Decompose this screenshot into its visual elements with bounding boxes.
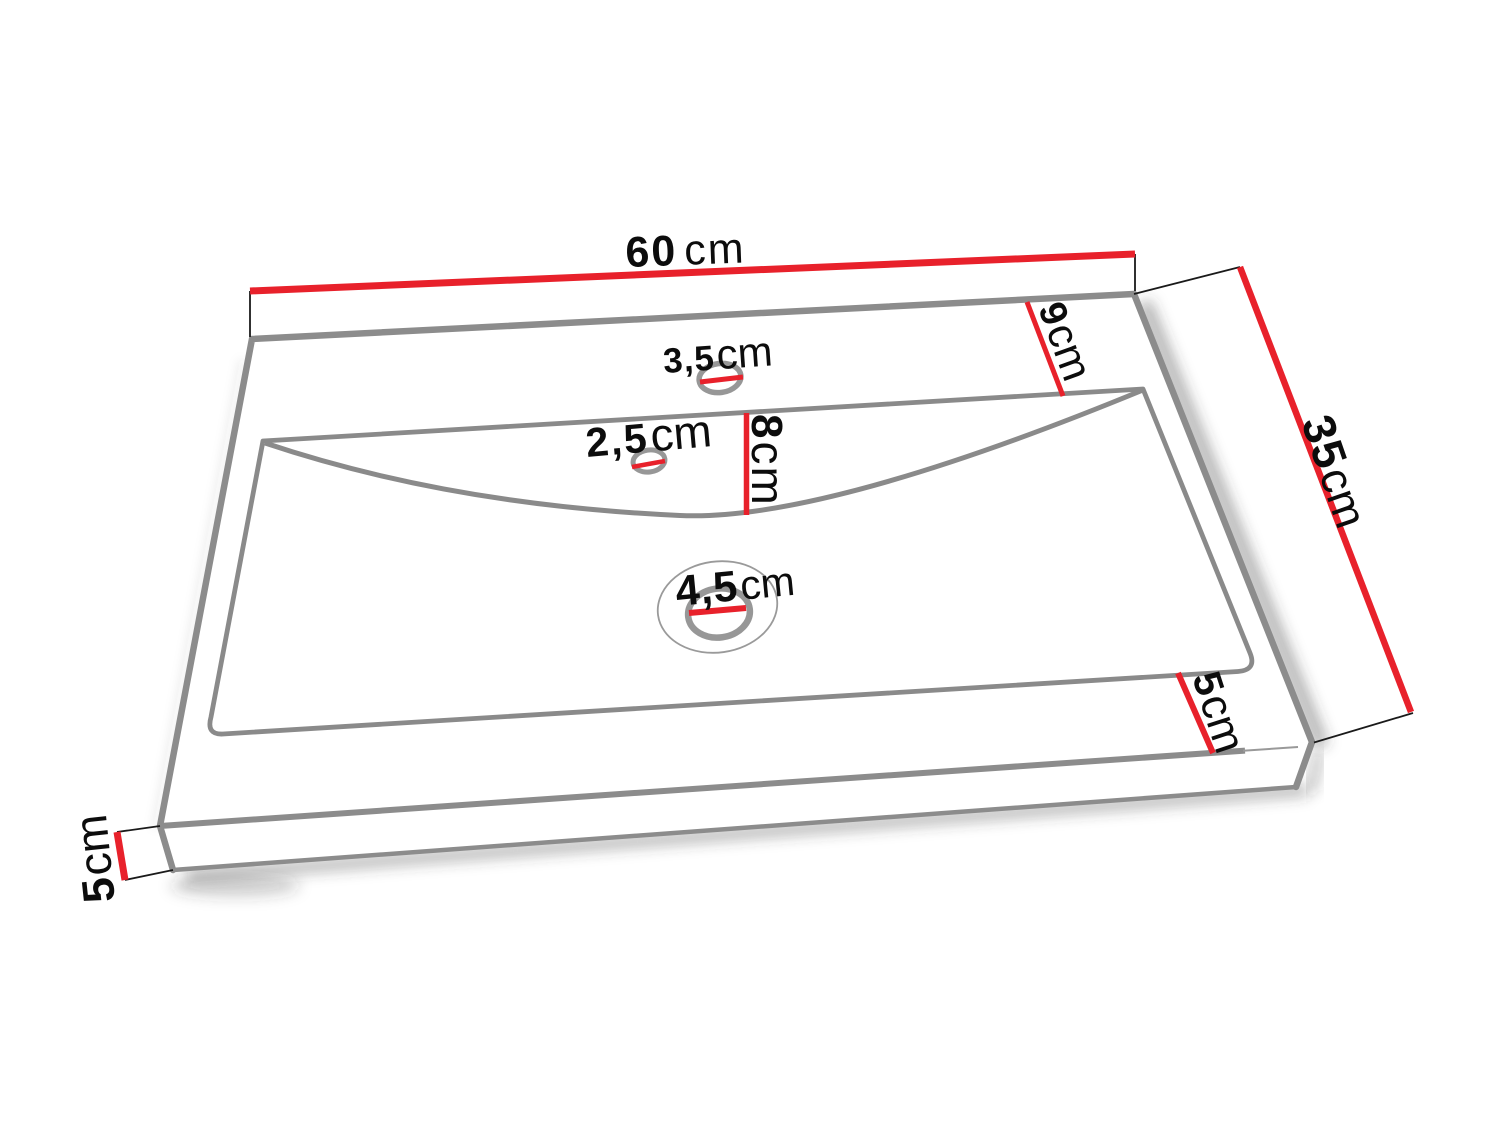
- svg-text:5cm: 5cm: [64, 812, 125, 905]
- svg-text:60cm: 60cm: [625, 224, 747, 277]
- svg-text:8cm: 8cm: [742, 414, 794, 507]
